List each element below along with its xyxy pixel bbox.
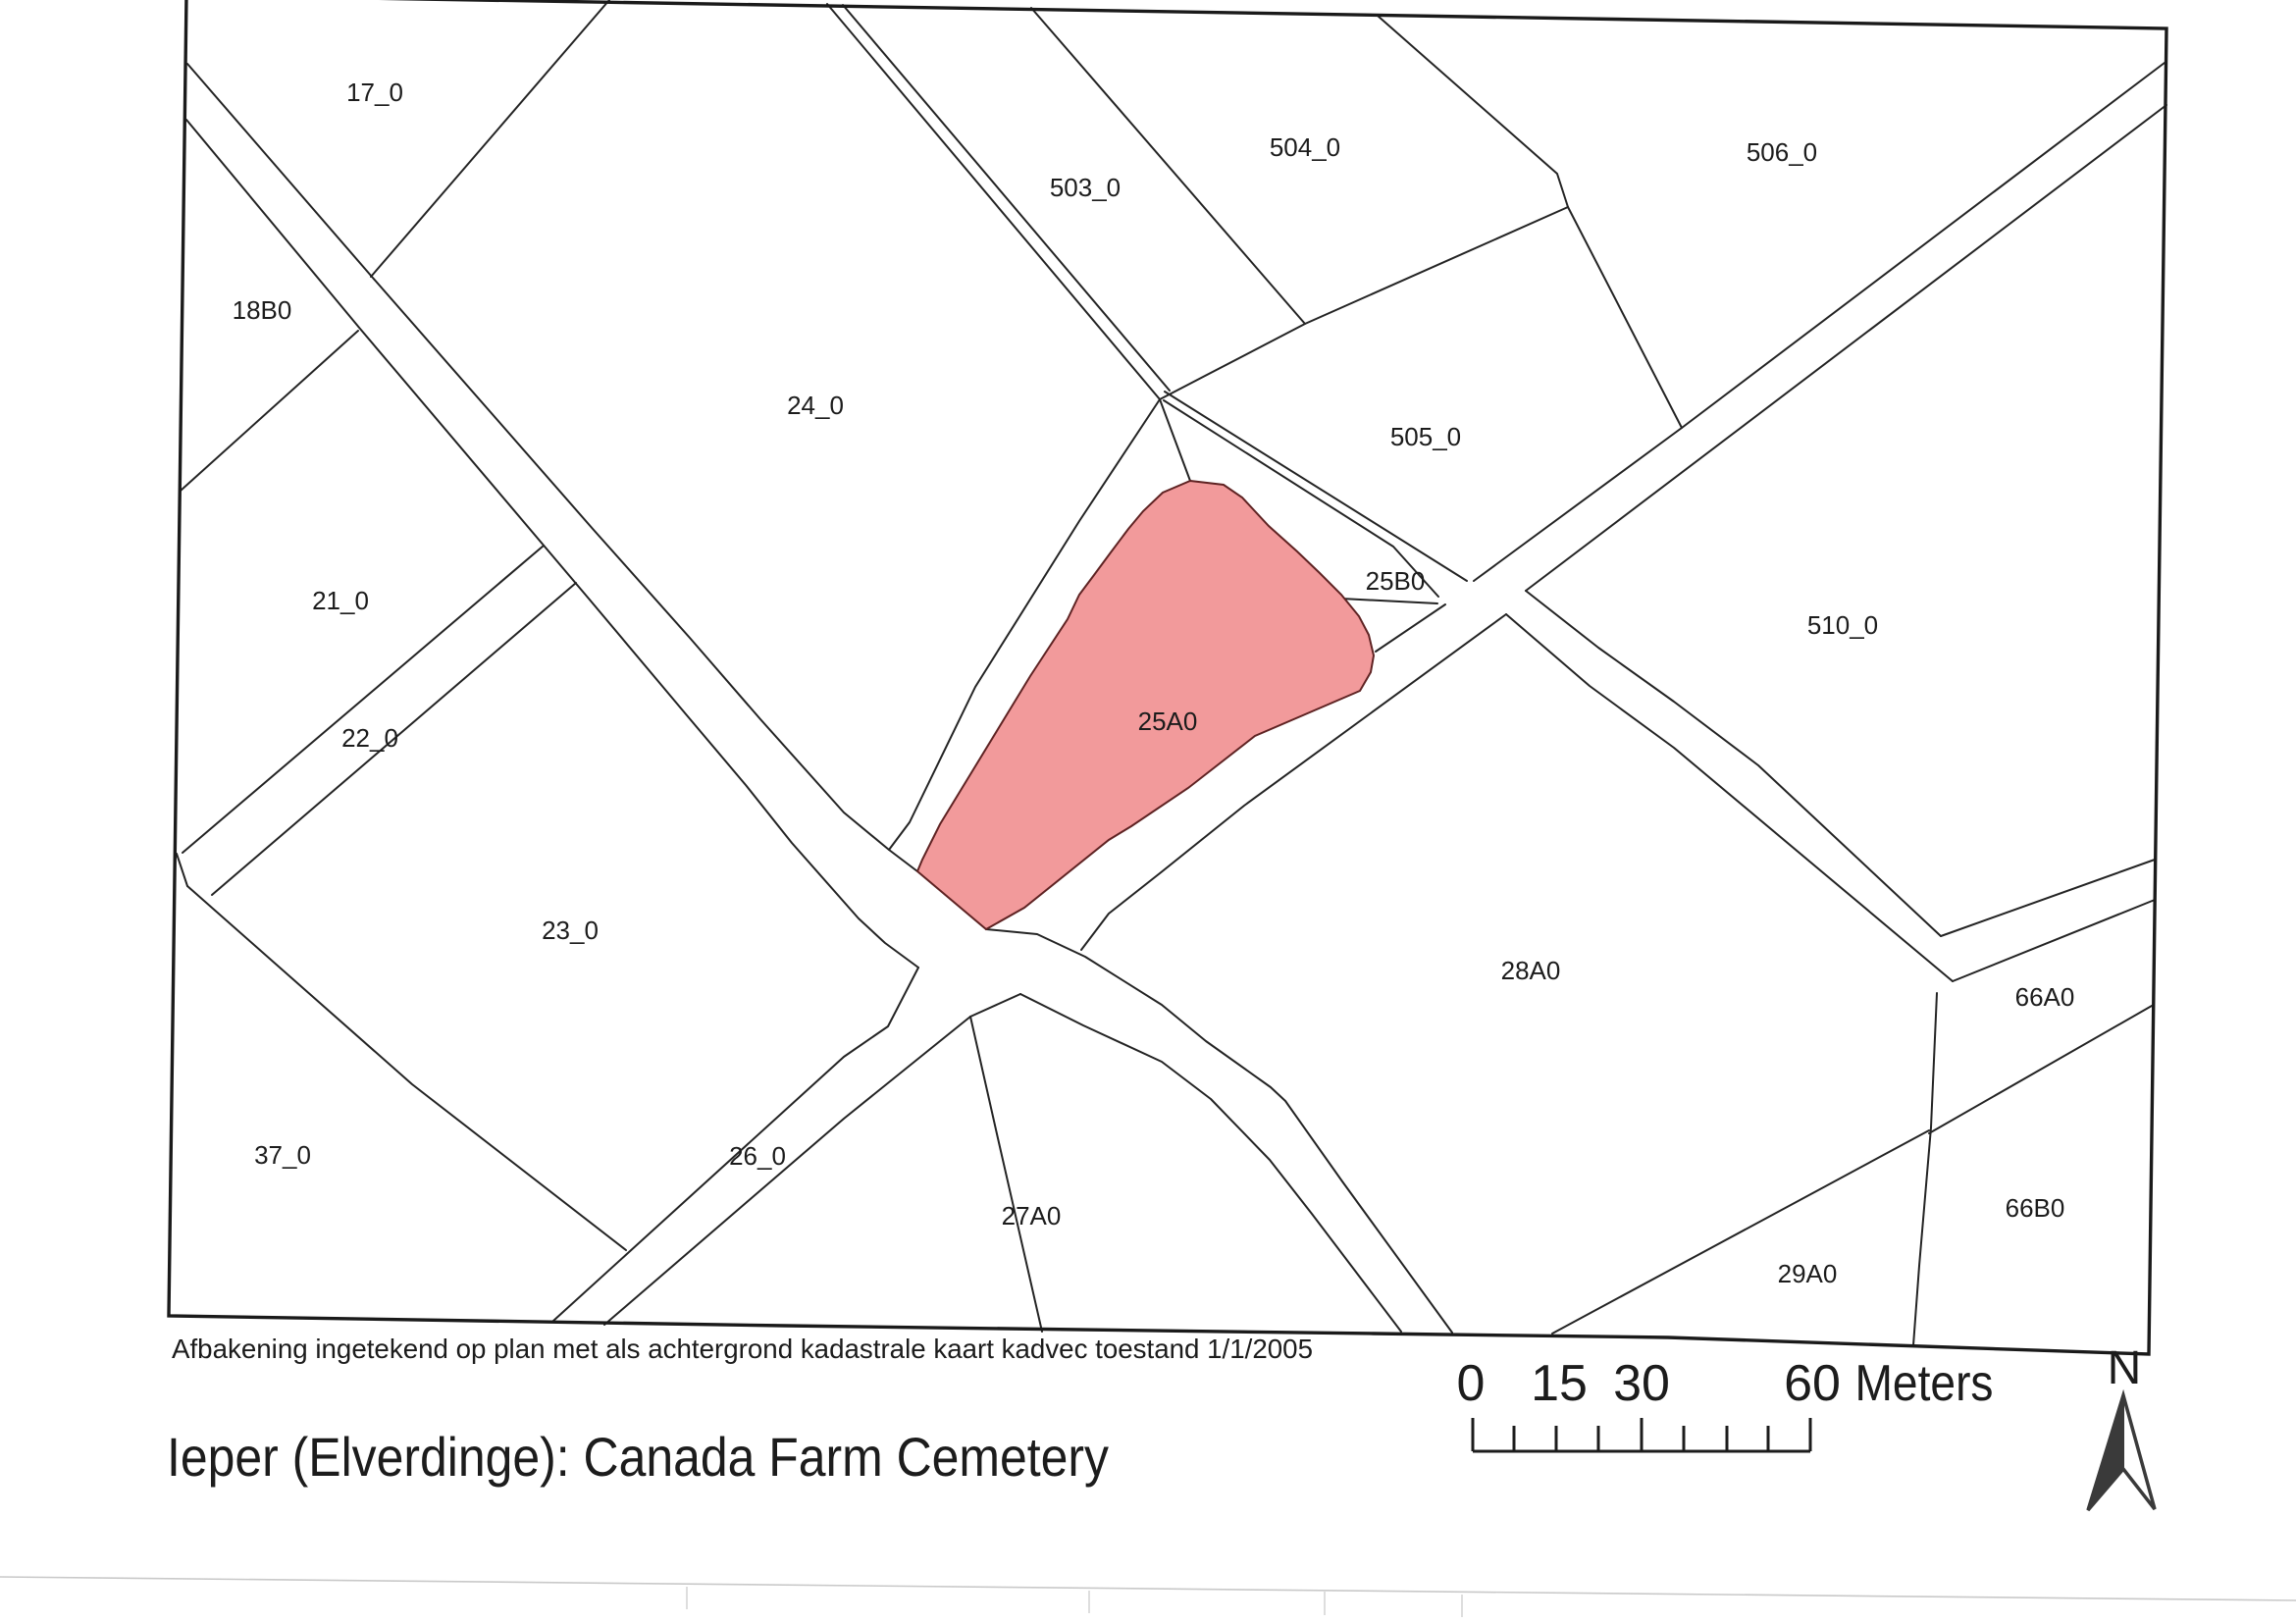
svg-text:25B0: 25B0 [1366,566,1426,596]
svg-text:Afbakening ingetekend op plan: Afbakening ingetekend op plan met als ac… [172,1334,1313,1364]
svg-text:N: N [2108,1342,2142,1394]
svg-text:28A0: 28A0 [1501,956,1561,985]
svg-text:505_0: 505_0 [1390,422,1461,451]
svg-text:0: 0 [1457,1355,1486,1412]
svg-text:37_0: 37_0 [254,1140,311,1170]
svg-text:27A0: 27A0 [1002,1201,1062,1230]
svg-text:21_0: 21_0 [312,586,369,615]
svg-text:22_0: 22_0 [341,723,398,753]
svg-text:Meters: Meters [1855,1355,1994,1412]
svg-text:506_0: 506_0 [1747,137,1817,167]
svg-text:24_0: 24_0 [787,391,844,420]
svg-text:30: 30 [1613,1355,1670,1412]
svg-text:23_0: 23_0 [542,916,599,945]
svg-text:Ieper (Elverdinge): Canada Far: Ieper (Elverdinge): Canada Farm Cemetery [167,1426,1109,1488]
svg-text:18B0: 18B0 [233,295,292,325]
svg-text:15: 15 [1531,1355,1588,1412]
svg-text:510_0: 510_0 [1807,610,1878,640]
svg-text:29A0: 29A0 [1778,1259,1838,1288]
svg-text:66A0: 66A0 [2015,982,2075,1012]
svg-text:66B0: 66B0 [2006,1193,2065,1223]
svg-text:17_0: 17_0 [346,78,403,107]
svg-text:503_0: 503_0 [1050,173,1121,202]
svg-text:60: 60 [1784,1355,1841,1412]
svg-text:25A0: 25A0 [1138,707,1198,736]
svg-text:26_0: 26_0 [729,1141,786,1171]
svg-text:504_0: 504_0 [1270,132,1340,162]
